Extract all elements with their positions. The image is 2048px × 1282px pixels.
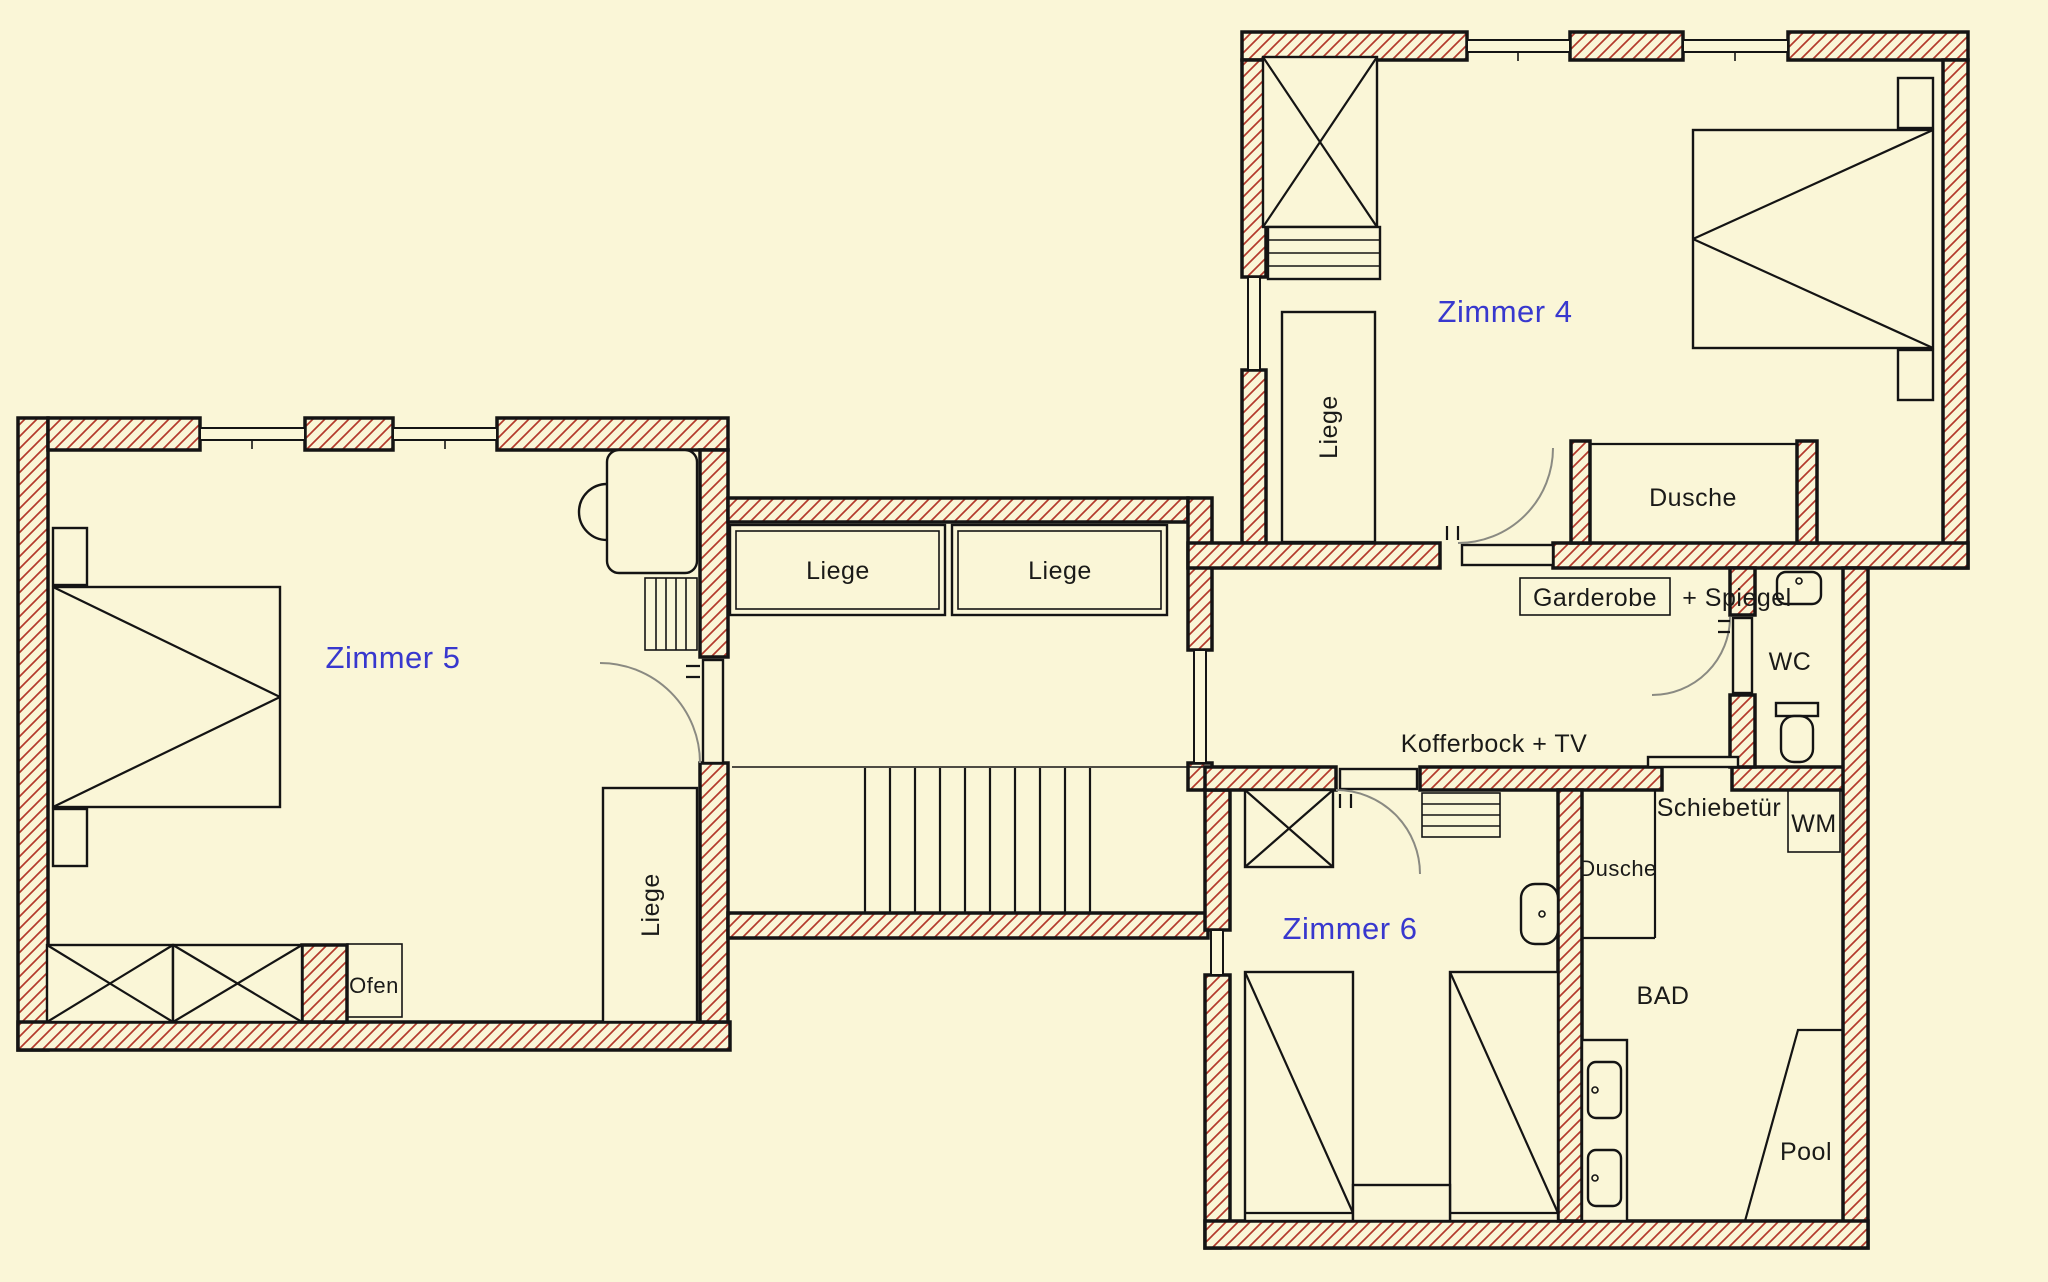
wall-corridor-north [728, 498, 1188, 522]
window-z6-left [1211, 930, 1223, 975]
pool-outline [1745, 1030, 1843, 1221]
floor-plan-page: Zimmer 5 Zimmer 4 Zimmer 6 Liege Liege L… [0, 0, 2048, 1282]
room-label-zimmer-5: Zimmer 5 [326, 640, 461, 675]
door-wc [1652, 617, 1752, 695]
label-liege-hall-1: Liege [806, 557, 870, 585]
furniture-zimmer-5 [47, 450, 697, 1022]
basin-bad-1 [1588, 1062, 1621, 1118]
stair-treads [865, 768, 1090, 913]
label-dusche-bad: Dusche [1579, 856, 1657, 881]
label-liege-hall-2: Liege [1028, 557, 1092, 585]
wall-z5-top-1 [48, 418, 200, 450]
wall-z5-bottom [18, 1022, 730, 1050]
door-zimmer-5 [600, 660, 723, 763]
wall-z5-left [18, 418, 48, 1050]
door-leaf-z6 [1340, 769, 1417, 789]
label-pool: Pool [1780, 1138, 1832, 1166]
steps-z6-treads [1422, 804, 1500, 826]
wall-corridor-east-upper [1188, 498, 1212, 650]
washbasin-z5 [607, 450, 697, 573]
steps-zimmer-6 [1422, 793, 1500, 837]
wall-z5-right-upper [700, 450, 728, 657]
bed-double-z5 [53, 587, 280, 807]
toilet-bowl-wc [1781, 716, 1813, 762]
wall-z4-top-2 [1570, 32, 1683, 60]
nightstand-z5-bottom [53, 809, 87, 866]
furniture-corridor [730, 525, 1167, 615]
wall-dusche-stub-right [1797, 441, 1817, 543]
door-arc-z5 [600, 663, 700, 763]
window-corridor-east [1194, 650, 1206, 763]
nightstand-z5-top [53, 528, 87, 585]
nightstand-z4-bottom [1898, 350, 1933, 400]
door-zimmer-4 [1447, 448, 1553, 565]
label-wm: WM [1791, 810, 1836, 838]
door-jamb-z5 [686, 666, 700, 677]
window-z4-left [1248, 277, 1260, 370]
door-leaf-z5 [703, 660, 723, 763]
shelf-between-beds-z6 [1353, 1185, 1450, 1221]
furniture-zimmer-6 [1245, 790, 1558, 1221]
wall-z4-south-2 [1553, 543, 1968, 568]
window-z4-top-1 [1467, 40, 1570, 61]
label-wc: WC [1769, 648, 1812, 676]
room-label-zimmer-4: Zimmer 4 [1438, 294, 1573, 329]
label-bad: BAD [1637, 982, 1690, 1010]
label-ofen: Ofen [349, 973, 399, 998]
wall-corridor-south [728, 913, 1208, 938]
wall-z5-chimney [302, 945, 347, 1022]
door-jamb-z4 [1447, 526, 1458, 540]
door-leaf-wc [1733, 618, 1752, 693]
wall-block-bottom [1205, 1221, 1868, 1248]
furniture-zimmer-4 [1263, 57, 1933, 542]
wall-bad-left [1558, 790, 1582, 1221]
window-z5-top-1 [200, 428, 305, 449]
door-leaf-z4 [1462, 545, 1553, 565]
label-spiegel: + Spiegel [1682, 584, 1791, 612]
label-liege-z4: Liege [1315, 395, 1343, 459]
door-zimmer-6 [1336, 769, 1420, 874]
toilet-tank-wc [1776, 703, 1818, 716]
sliding-door-schiebetuer [1648, 757, 1738, 767]
label-garderobe: Garderobe [1533, 584, 1657, 612]
wall-z4-south-1 [1188, 543, 1440, 568]
wall-z6-left-2 [1205, 975, 1230, 1248]
door-arc-z6 [1336, 790, 1420, 874]
wall-z6-left-1 [1205, 790, 1230, 930]
wall-main-horiz-1 [1205, 767, 1336, 790]
door-jamb-z6 [1340, 794, 1351, 808]
window-z4-top-2 [1683, 40, 1788, 61]
washbasin-z5-bowl [579, 484, 607, 540]
door-arc-z4 [1458, 448, 1553, 543]
sliding-door-panel [1648, 757, 1738, 767]
wall-z5-right-lower [700, 763, 728, 1022]
wall-z5-top-2 [305, 418, 393, 450]
window-z5-top-2 [393, 428, 497, 449]
label-liege-z5: Liege [637, 873, 665, 937]
wall-z4-top-3 [1788, 32, 1968, 60]
staircase-main [732, 767, 1205, 913]
radiator-z5 [645, 578, 697, 650]
wall-z5-top-3 [497, 418, 728, 450]
bed-double-z4 [1693, 130, 1933, 348]
wall-z4-left-2 [1242, 370, 1266, 543]
door-arc-wc [1652, 617, 1730, 695]
room-label-zimmer-6: Zimmer 6 [1283, 911, 1418, 946]
floor-plan-drawing: Zimmer 5 Zimmer 4 Zimmer 6 Liege Liege L… [0, 0, 2048, 1282]
label-kofferbock-tv: Kofferbock + TV [1401, 730, 1588, 758]
label-schiebetuer: Schiebetür [1657, 794, 1782, 822]
wall-main-horiz-2 [1420, 767, 1662, 790]
wall-block-right [1843, 568, 1868, 1248]
nightstand-z4-top [1898, 78, 1933, 128]
wall-dusche-stub-left [1571, 441, 1590, 543]
wall-z4-right [1943, 60, 1968, 568]
basin-bad-2 [1588, 1150, 1621, 1206]
radiator-z5-fins [656, 578, 686, 650]
label-dusche-z4: Dusche [1649, 484, 1737, 512]
